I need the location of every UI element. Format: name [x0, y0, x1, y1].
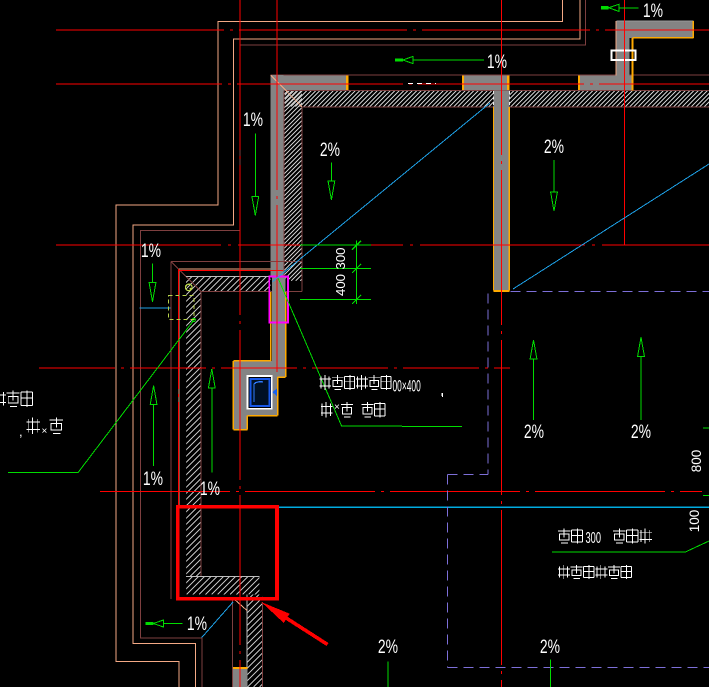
- svg-text:×: ×: [42, 426, 48, 437]
- svg-text:2%: 2%: [524, 421, 544, 443]
- svg-text:2%: 2%: [631, 421, 651, 443]
- svg-text:1%: 1%: [200, 478, 220, 500]
- svg-text:1%: 1%: [187, 613, 207, 635]
- svg-text:300: 300: [333, 247, 348, 269]
- svg-text:800: 800: [689, 450, 704, 473]
- svg-text:00×400: 00×400: [393, 376, 421, 395]
- svg-text:2%: 2%: [378, 636, 398, 658]
- svg-text:400: 400: [333, 274, 348, 296]
- svg-text:1%: 1%: [487, 51, 507, 73]
- svg-text:1%: 1%: [643, 0, 663, 22]
- svg-text:×: ×: [334, 402, 340, 413]
- svg-text:100: 100: [687, 510, 702, 533]
- svg-text:1%: 1%: [141, 240, 161, 262]
- svg-text:300: 300: [586, 528, 602, 546]
- svg-text:1%: 1%: [243, 109, 263, 131]
- svg-text:2%: 2%: [320, 139, 340, 161]
- svg-text:1%: 1%: [143, 468, 163, 490]
- svg-text:2%: 2%: [544, 136, 564, 158]
- svg-text:2%: 2%: [540, 636, 560, 658]
- svg-text:,: ,: [19, 424, 23, 439]
